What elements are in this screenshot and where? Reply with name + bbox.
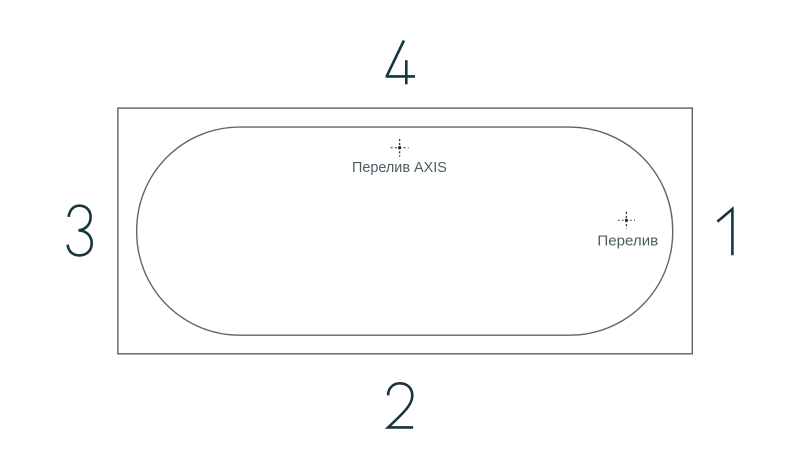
svg-text:Перелив: Перелив	[597, 234, 658, 250]
svg-text:Перелив AXIS: Перелив AXIS	[352, 160, 447, 176]
